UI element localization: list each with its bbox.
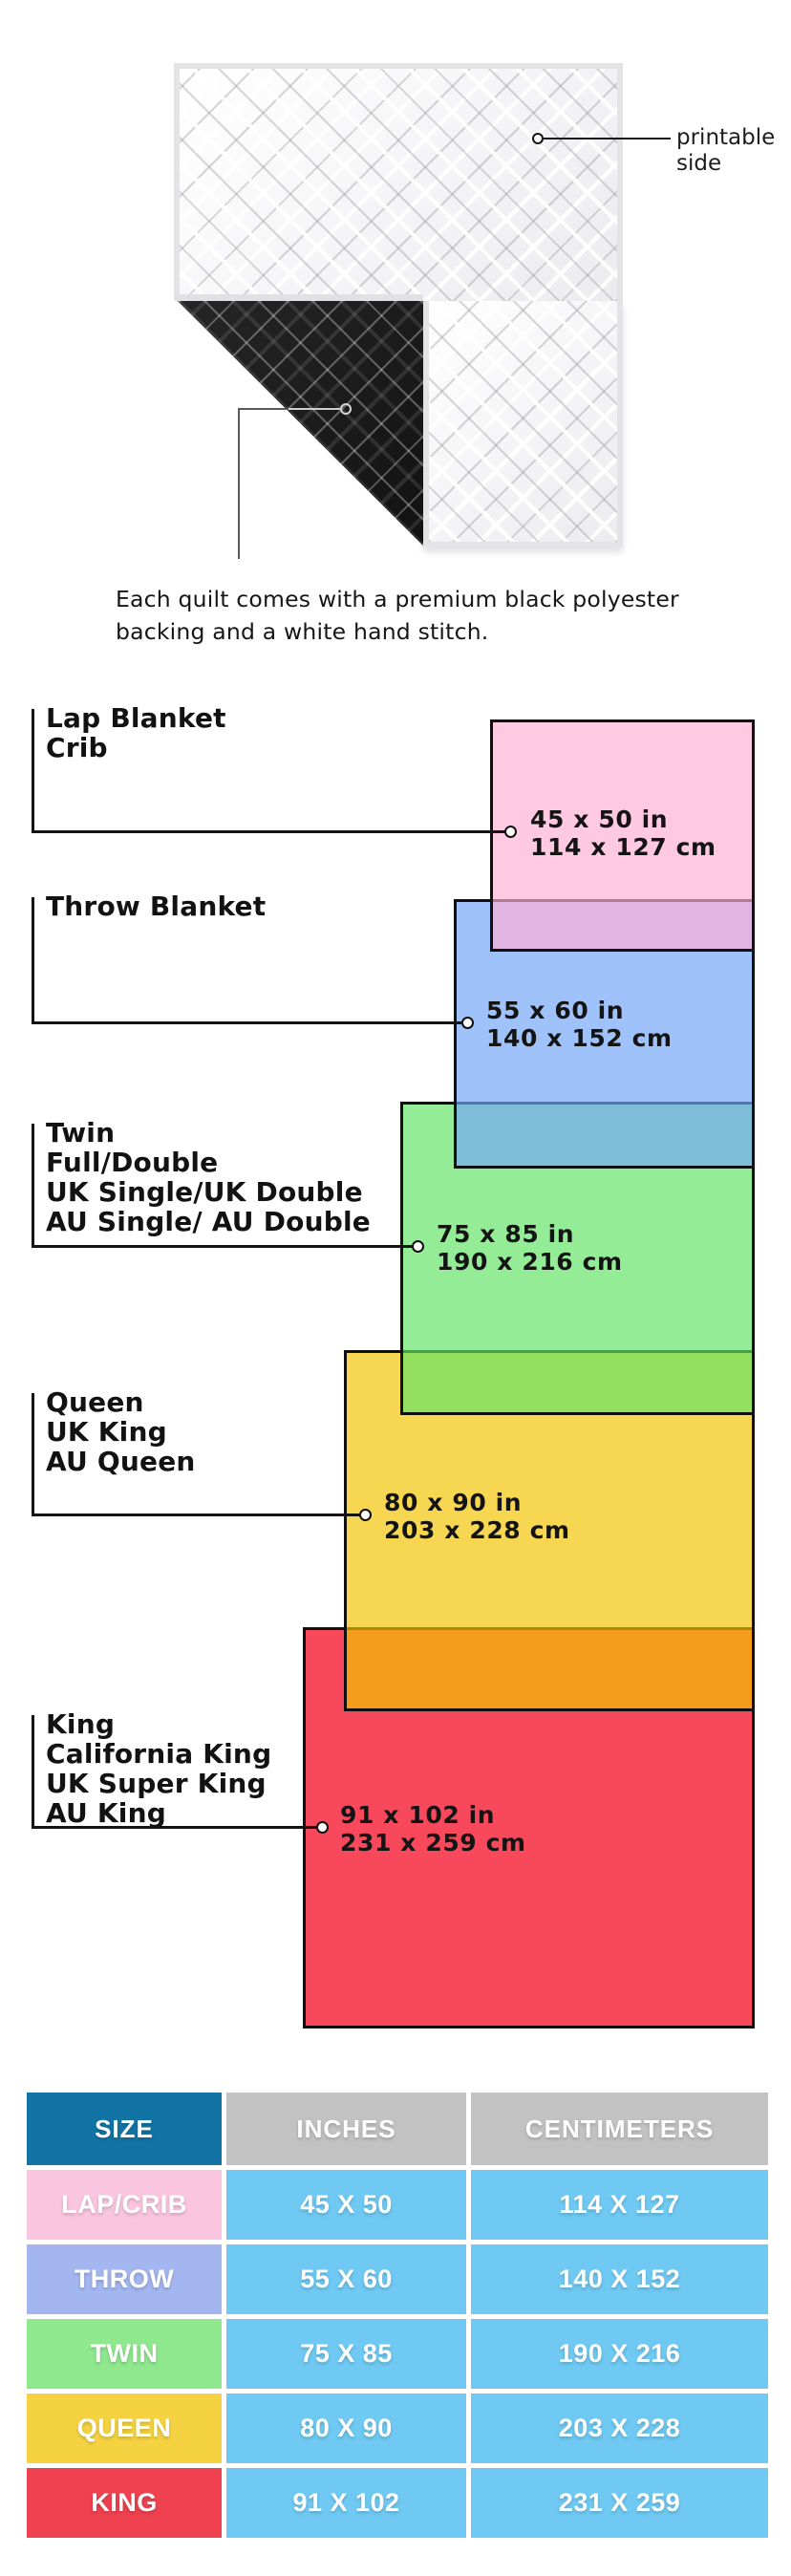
leader-bracket-twin (32, 1124, 34, 1247)
leader-dot-throw (461, 1017, 474, 1029)
size-inches: 91 x 102 in (340, 1801, 526, 1829)
label-line: Queen (46, 1387, 196, 1417)
size-centimeters: 203 x 228 cm (384, 1516, 570, 1544)
label-line: AU Single/ AU Double (46, 1207, 371, 1236)
table-row-label-king: KING (27, 2468, 222, 2538)
table-cell-inches: 80 X 90 (226, 2394, 466, 2463)
size-centimeters: 231 x 259 cm (340, 1829, 526, 1857)
size-text-lap: 45 x 50 in 114 x 127 cm (530, 805, 716, 861)
blanket-label-lap: Lap Blanket Crib (46, 703, 226, 762)
leader-bracket-lap (32, 709, 34, 831)
label-line: Crib (46, 733, 226, 762)
leader-bracket-throw (32, 897, 34, 1023)
label-line: Throw Blanket (46, 891, 266, 921)
size-inches: 80 x 90 in (384, 1489, 570, 1516)
table-row-label-lap: LAP/CRIB (27, 2170, 222, 2240)
table-header-centimeters: CENTIMETERS (471, 2093, 768, 2165)
table-cell-inches: 45 X 50 (226, 2170, 466, 2240)
table-cell-inches: 91 X 102 (226, 2468, 466, 2538)
blanket-label-queen: Queen UK King AU Queen (46, 1387, 196, 1476)
table-cell-centimeters: 114 X 127 (471, 2170, 768, 2240)
table-header-size: SIZE (27, 2093, 222, 2165)
label-line: King (46, 1709, 271, 1739)
backing-leader-line-on-fabric (288, 408, 340, 410)
leader-line-throw (32, 1021, 461, 1024)
size-centimeters: 140 x 152 cm (486, 1024, 673, 1052)
blanket-label-king: King California King UK Super King AU Ki… (46, 1709, 271, 1828)
printable-side-label-line2: side (676, 151, 775, 177)
printable-side-label-line1: printable (676, 125, 775, 151)
quilt-black-backing-fold (178, 301, 423, 546)
label-line: Lap Blanket (46, 703, 226, 733)
table-row-label-queen: QUEEN (27, 2394, 222, 2463)
sizes-table: SIZE INCHES CENTIMETERS LAP/CRIB 45 X 50… (27, 2093, 768, 2538)
size-centimeters: 114 x 127 cm (530, 833, 716, 861)
leader-line-king (32, 1826, 316, 1829)
quilt-caption: Each quilt comes with a premium black po… (116, 583, 679, 648)
printable-side-label: printable side (676, 125, 775, 177)
leader-bracket-queen (32, 1393, 34, 1515)
table-row-label-twin: TWIN (27, 2319, 222, 2389)
table-cell-inches: 55 X 60 (226, 2244, 466, 2314)
leader-line-lap (32, 830, 506, 833)
leader-dot-queen (359, 1509, 372, 1521)
leader-dot-twin (412, 1240, 424, 1253)
blanket-label-throw: Throw Blanket (46, 891, 266, 921)
label-line: UK Super King (46, 1769, 271, 1798)
table-cell-centimeters: 140 X 152 (471, 2244, 768, 2314)
label-line: AU King (46, 1798, 271, 1828)
printable-side-leader-line (543, 138, 671, 140)
size-text-throw: 55 x 60 in 140 x 152 cm (486, 997, 673, 1052)
size-text-king: 91 x 102 in 231 x 259 cm (340, 1801, 526, 1857)
label-line: AU Queen (46, 1447, 196, 1476)
quilt-caption-line1: Each quilt comes with a premium black po… (116, 583, 679, 615)
label-line: Twin (46, 1118, 371, 1148)
table-row-label-throw: THROW (27, 2244, 222, 2314)
size-text-twin: 75 x 85 in 190 x 216 cm (437, 1220, 623, 1276)
backing-leader-line-vertical (238, 408, 240, 559)
leader-bracket-king (32, 1715, 34, 1828)
leader-dot-lap (504, 826, 517, 838)
label-line: Full/Double (46, 1148, 371, 1177)
size-inches: 55 x 60 in (486, 997, 673, 1024)
size-text-queen: 80 x 90 in 203 x 228 cm (384, 1489, 570, 1544)
table-cell-centimeters: 190 X 216 (471, 2319, 768, 2389)
leader-line-twin (32, 1245, 412, 1248)
leader-line-queen (32, 1513, 359, 1516)
table-cell-centimeters: 203 X 228 (471, 2394, 768, 2463)
size-centimeters: 190 x 216 cm (437, 1248, 623, 1276)
label-line: UK Single/UK Double (46, 1177, 371, 1207)
quilt-size-guide-infographic: printable side Each quilt comes with a p… (0, 0, 791, 2576)
leader-dot-king (316, 1821, 329, 1834)
quilt-front-top (174, 63, 623, 301)
table-cell-centimeters: 231 X 259 (471, 2468, 768, 2538)
label-line: UK King (46, 1417, 196, 1447)
label-line: California King (46, 1739, 271, 1769)
size-inches: 45 x 50 in (530, 805, 716, 833)
table-cell-inches: 75 X 85 (226, 2319, 466, 2389)
backing-marker-dot (340, 403, 352, 415)
quilt-caption-line2: backing and a white hand stitch. (116, 615, 679, 648)
quilt-fold-binding-edge (174, 294, 423, 301)
table-header-inches: INCHES (226, 2093, 466, 2165)
quilt-front-right-column (423, 301, 623, 547)
backing-leader-line (238, 408, 289, 410)
blanket-label-twin: Twin Full/Double UK Single/UK Double AU … (46, 1118, 371, 1236)
size-inches: 75 x 85 in (437, 1220, 623, 1248)
